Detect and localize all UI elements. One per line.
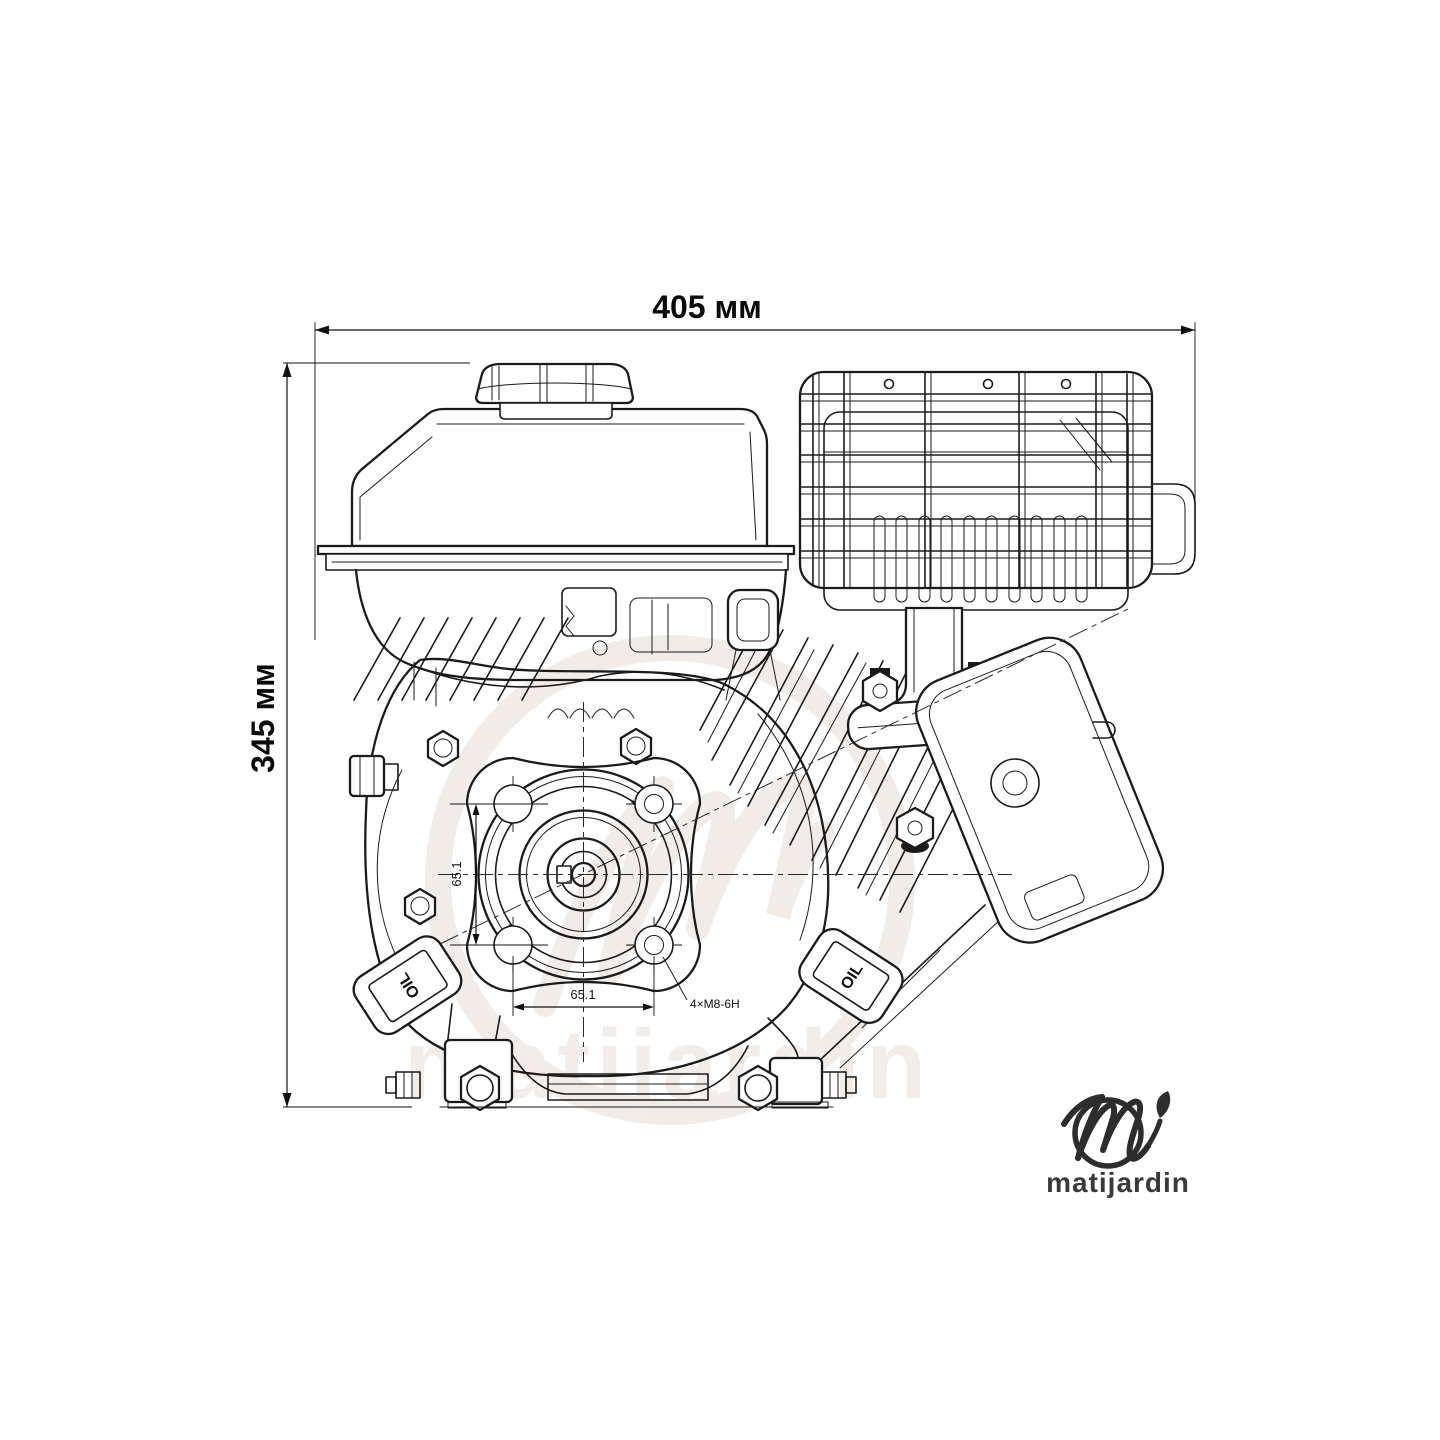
muffler-handle <box>1152 484 1195 574</box>
cage-bolt-hole <box>885 380 894 389</box>
oil-drain-plug <box>350 756 398 796</box>
height-dimension-label: 345 мм <box>245 663 281 773</box>
brand-logo: matijardin <box>1046 1091 1190 1198</box>
leaf-icon <box>1157 1091 1171 1118</box>
engine-diagram-svg: matijardin <box>0 0 1440 1440</box>
bolt-on-case <box>897 808 933 853</box>
muffler-guard <box>800 372 1152 610</box>
width-dimension-label: 405 мм <box>652 289 762 325</box>
cage-bolt-hole <box>984 380 993 389</box>
fuel-cap <box>476 364 633 419</box>
flange-vertical-dimension-label: 65.1 <box>449 861 464 886</box>
mounting-foot-left <box>445 1040 512 1110</box>
bolt-pattern-label: 4×M8-6H <box>690 997 740 1011</box>
head-bolt <box>863 668 897 711</box>
product-technical-drawing: matijardin <box>0 0 1440 1440</box>
brand-logo-text: matijardin <box>1046 1167 1190 1198</box>
flange-horizontal-dimension-label: 65.1 <box>570 987 595 1002</box>
cage-bolt-hole <box>1062 380 1071 389</box>
bolt-pattern-callout: 4×M8-6H <box>663 957 740 1011</box>
